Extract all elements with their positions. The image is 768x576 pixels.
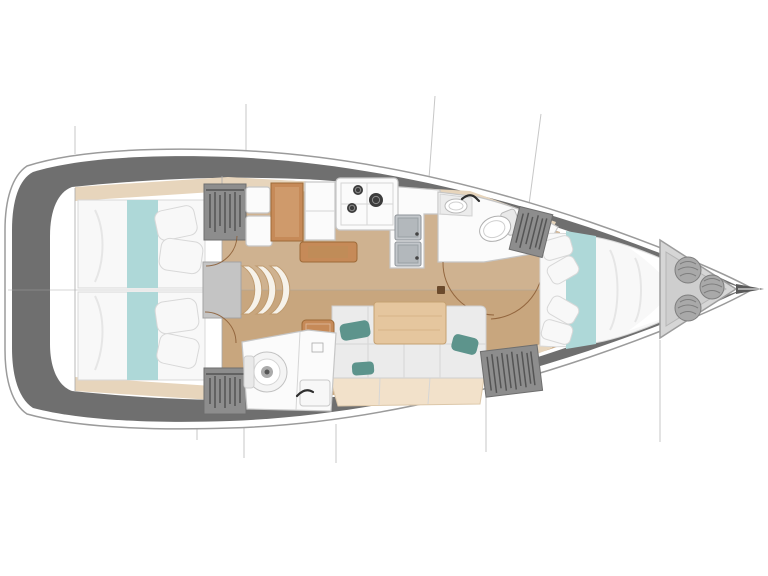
toilet-button xyxy=(265,370,270,375)
pillow xyxy=(154,297,200,335)
dining-table xyxy=(374,302,446,344)
toilet-base xyxy=(244,356,254,388)
yacht-floor-plan xyxy=(0,0,768,576)
pillow xyxy=(158,237,204,275)
sink-unit xyxy=(395,215,421,266)
head-basin xyxy=(300,380,330,406)
burner xyxy=(347,203,357,213)
sink-basin xyxy=(398,245,418,263)
settee-base xyxy=(330,378,484,406)
bench-top xyxy=(308,246,348,258)
wardrobe-bottom xyxy=(480,345,542,398)
sink-drain xyxy=(415,232,419,236)
floor-plan-canvas xyxy=(0,0,768,576)
nav-seat-back xyxy=(246,216,272,246)
aft-head xyxy=(242,330,336,411)
berth-runner xyxy=(127,292,158,380)
accent-pillow xyxy=(352,361,375,376)
sink-basin xyxy=(398,218,418,237)
mast-step xyxy=(437,286,445,294)
berth-runner xyxy=(127,200,158,288)
landing xyxy=(203,262,241,318)
burner xyxy=(353,185,363,195)
burner xyxy=(369,193,383,207)
nav-seat xyxy=(246,187,270,213)
sink-drain xyxy=(415,256,419,260)
head-basin xyxy=(445,199,467,213)
chart-table-top xyxy=(275,187,299,237)
